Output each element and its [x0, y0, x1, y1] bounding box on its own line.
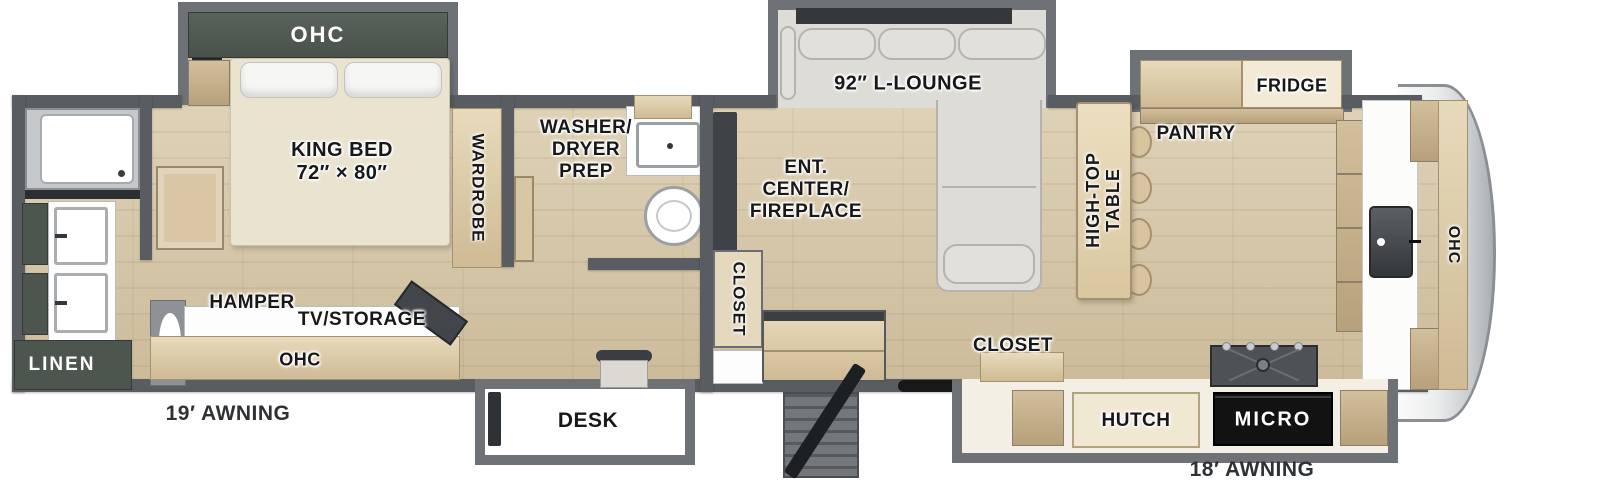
- microwave-trim: [1215, 396, 1331, 398]
- mid-closet-label: CLOSET: [729, 262, 748, 337]
- sofa-end-cushion: [943, 244, 1035, 284]
- cabinet-seam: [1337, 281, 1363, 283]
- faucet-icon: [1377, 238, 1385, 246]
- kitchen-ohc-label: OHC: [1444, 226, 1462, 265]
- kitchen-cabinet-column: [1336, 120, 1364, 332]
- sofa-cushion: [798, 28, 876, 60]
- cooktop: [1210, 345, 1318, 387]
- l-lounge-label: 92″ L-LOUNGE: [834, 73, 982, 96]
- pillow: [240, 62, 338, 98]
- linen-label: LINEN: [29, 354, 96, 376]
- pantry-label: PANTRY: [1157, 123, 1236, 145]
- lounge-slide-topper: [796, 8, 1012, 24]
- washer-room-wall: [502, 95, 514, 267]
- bedroom-lower-ohc-label: OHC: [279, 350, 321, 371]
- sofa-armrest: [780, 26, 796, 100]
- cabinet-seam: [1337, 173, 1363, 175]
- hutch-label: HUTCH: [1102, 410, 1171, 432]
- lav-shelf: [634, 95, 692, 119]
- washer-dryer-label: WASHER/ DRYER PREP: [540, 117, 632, 183]
- burner-icon: [1270, 342, 1279, 351]
- desk-slot: [488, 392, 501, 446]
- shower-drain: [118, 170, 125, 177]
- vanity-sink: [54, 207, 108, 265]
- sofa-cushion: [958, 28, 1046, 60]
- lav-sink: [636, 122, 700, 168]
- sofa-seam: [942, 186, 1036, 188]
- tv-storage-label: TV/STORAGE: [298, 309, 426, 331]
- faucet-icon: [667, 143, 673, 149]
- nightstand: [188, 60, 230, 106]
- faucet-icon: [55, 301, 67, 305]
- closet-kitchen-label: CLOSET: [973, 335, 1053, 357]
- high-top-table-label: HIGH-TOP TABLE: [1084, 152, 1124, 248]
- bedroom-door: [156, 166, 224, 250]
- burner-icon: [1246, 342, 1255, 351]
- micro-label: MICRO: [1235, 409, 1312, 432]
- toilet: [644, 186, 704, 246]
- faucet-icon: [55, 234, 67, 238]
- washer-room-wall: [588, 258, 712, 270]
- vanity-cabinet: [22, 273, 48, 335]
- wall-top: [450, 95, 776, 108]
- cooktop-knob: [1256, 358, 1270, 372]
- fridge-label: FRIDGE: [1256, 76, 1327, 97]
- sofa-cushion: [878, 28, 956, 60]
- washer-room-door: [514, 176, 534, 262]
- cabinet-seam: [1337, 227, 1363, 229]
- bathroom-divider: [25, 190, 140, 199]
- mid-closet-cabinet: [713, 350, 763, 384]
- living-divider-wall: [700, 95, 713, 392]
- ent-center-label: ENT. CENTER/ FIREPLACE: [750, 157, 862, 223]
- kitchen-sink: [1369, 206, 1413, 278]
- desk-label: DESK: [558, 409, 618, 433]
- awning-right-label: 18′ AWNING: [1190, 458, 1315, 482]
- corner-cabinet: [1410, 100, 1440, 162]
- hamper-label: HAMPER: [209, 292, 294, 314]
- entry-cabinet-top: [764, 312, 884, 321]
- pantry-cabinet: [1140, 60, 1242, 108]
- king-bed-label: KING BED 72″ × 80″: [291, 139, 393, 185]
- ent-center-unit: [713, 112, 737, 254]
- wardrobe-label: WARDROBE: [468, 133, 487, 242]
- vanity-sink: [54, 273, 108, 333]
- vanity-cabinet: [22, 203, 48, 265]
- entry-step-well: [898, 380, 960, 392]
- sofa-chaise: [936, 100, 1042, 292]
- faucet-handle: [1409, 240, 1421, 243]
- rv-floorplan: OHC 92″ L-LOUNGE FRIDGE PANTRY LINEN: [0, 0, 1600, 486]
- bathroom-wall: [140, 95, 152, 260]
- toilet-bowl: [656, 200, 692, 232]
- desk-chair-seat: [600, 360, 648, 388]
- entry-cabinet-shelf: [764, 350, 884, 352]
- pillow: [344, 62, 442, 98]
- awning-left-label: 19′ AWNING: [166, 402, 291, 426]
- entry-cabinet: [762, 310, 886, 382]
- wall-top: [12, 95, 182, 108]
- kitchen-slide-cabinet: [1012, 390, 1064, 446]
- pantry-counter: [1140, 108, 1344, 124]
- kitchen-slide-cabinet: [1340, 390, 1388, 446]
- bedroom-ohc-label: OHC: [291, 22, 346, 48]
- corner-cabinet: [1410, 328, 1440, 390]
